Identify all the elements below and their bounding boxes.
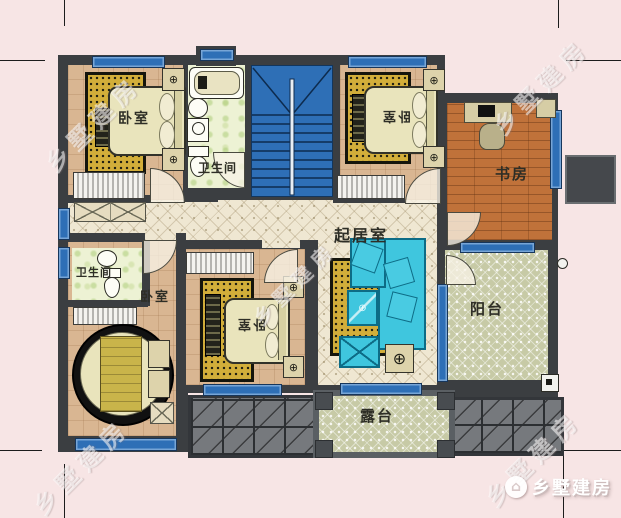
lamp-icon: ⊕ [289, 282, 298, 293]
window [58, 247, 70, 279]
pillow [159, 93, 175, 121]
sink [188, 98, 208, 118]
nightstand: ⊕ [162, 148, 185, 171]
headboard [174, 90, 182, 152]
crop-mark [558, 0, 559, 28]
wall-seg [176, 233, 186, 440]
window [460, 242, 535, 253]
crop-mark [0, 60, 45, 61]
window [340, 383, 422, 395]
pillow [265, 304, 279, 330]
window [550, 110, 562, 189]
bench-seat [148, 370, 170, 398]
window [92, 56, 165, 68]
cabinet-cell [151, 403, 173, 423]
wardrobe [73, 307, 137, 325]
bath-top-label: 卫生间 [198, 159, 237, 176]
cabinet-cell [75, 203, 110, 221]
crop-mark [563, 450, 621, 451]
window [75, 438, 177, 451]
washer-drum [192, 122, 205, 135]
pillow [265, 332, 279, 358]
floor-drain [541, 374, 559, 392]
headboard [278, 302, 286, 360]
wardrobe [73, 172, 145, 199]
nightstand: ⊕ [423, 146, 445, 168]
terrace-pillar [315, 392, 333, 410]
ottoman [339, 336, 380, 368]
window [58, 208, 70, 240]
nightstand: ⊕ [162, 68, 185, 91]
desk-chair [479, 123, 505, 150]
wardrobe [337, 175, 405, 199]
hall-cabinet [74, 202, 146, 222]
headboard [426, 90, 434, 150]
ac-platform [565, 155, 616, 204]
bedroom-top-left-label: 卧室 [118, 108, 150, 128]
round-bed-blanket [100, 336, 142, 412]
crop-mark [0, 450, 42, 451]
bath-left-label: 卫生间 [76, 264, 112, 280]
gutter-pipe [557, 258, 568, 269]
bathtub [189, 67, 244, 99]
study-label: 书房 [495, 163, 529, 184]
bedroom-left-label: 卧室 [140, 286, 170, 305]
bedroom-top-right-label: 卧室 [381, 108, 411, 127]
tv-cabinet [150, 402, 174, 424]
plant-icon: ⊕ [393, 351, 406, 367]
wall-seg [58, 233, 145, 242]
nightstand: ⊕ [283, 356, 304, 378]
pillow [412, 121, 427, 148]
crop-mark [64, 464, 65, 518]
lamp-icon: ⊕ [429, 152, 438, 163]
terrace-pillar [315, 440, 333, 458]
wall-seg [305, 240, 318, 385]
lamp-icon: ⊕ [429, 75, 438, 86]
coffee-table: ⊕ [347, 290, 378, 326]
window [203, 384, 282, 396]
bedroom-bottom-label: 卧室 [236, 316, 266, 335]
crop-mark [64, 0, 65, 26]
brand-logo: ⌂ 乡墅建房 [505, 474, 612, 500]
floor-plan-canvas: 露台 [0, 0, 621, 518]
washing-machine [187, 118, 209, 142]
desk [464, 102, 512, 123]
terrace-pillar [437, 392, 455, 410]
balcony-label: 阳台 [470, 298, 504, 319]
lamp-icon: ⊕ [289, 362, 298, 373]
faucet [198, 76, 207, 89]
living-room-label: 起居室 [334, 222, 388, 246]
tv-cabinet [205, 294, 221, 356]
nightstand: ⊕ [423, 69, 445, 91]
bench-seat [148, 340, 170, 368]
brand-logo-text: 乡墅建房 [532, 474, 612, 500]
window [348, 56, 427, 68]
roof-tiles-left [188, 395, 321, 458]
window [200, 49, 234, 61]
wall-seg [183, 188, 218, 202]
wall-seg [178, 240, 262, 249]
staircase [251, 65, 333, 197]
terrace-label: 露台 [360, 405, 394, 426]
house-icon: ⌂ [505, 476, 527, 498]
computer-monitor [478, 105, 495, 117]
pillow [159, 121, 175, 149]
wall-seg [68, 300, 148, 307]
wardrobe [186, 252, 254, 274]
crop-mark [566, 60, 621, 61]
window [437, 284, 448, 382]
roof-tiles-right [447, 397, 564, 456]
lamp-icon: ⊕ [169, 154, 178, 165]
plant-table: ⊕ [385, 344, 414, 373]
side-table [536, 99, 556, 118]
terrace-pillar [437, 440, 455, 458]
pillow [412, 92, 427, 119]
cabinet-cell [110, 203, 146, 221]
lamp-icon: ⊕ [169, 74, 178, 85]
drain-grate [546, 379, 552, 385]
table-decor-icon: ⊕ [358, 303, 366, 314]
